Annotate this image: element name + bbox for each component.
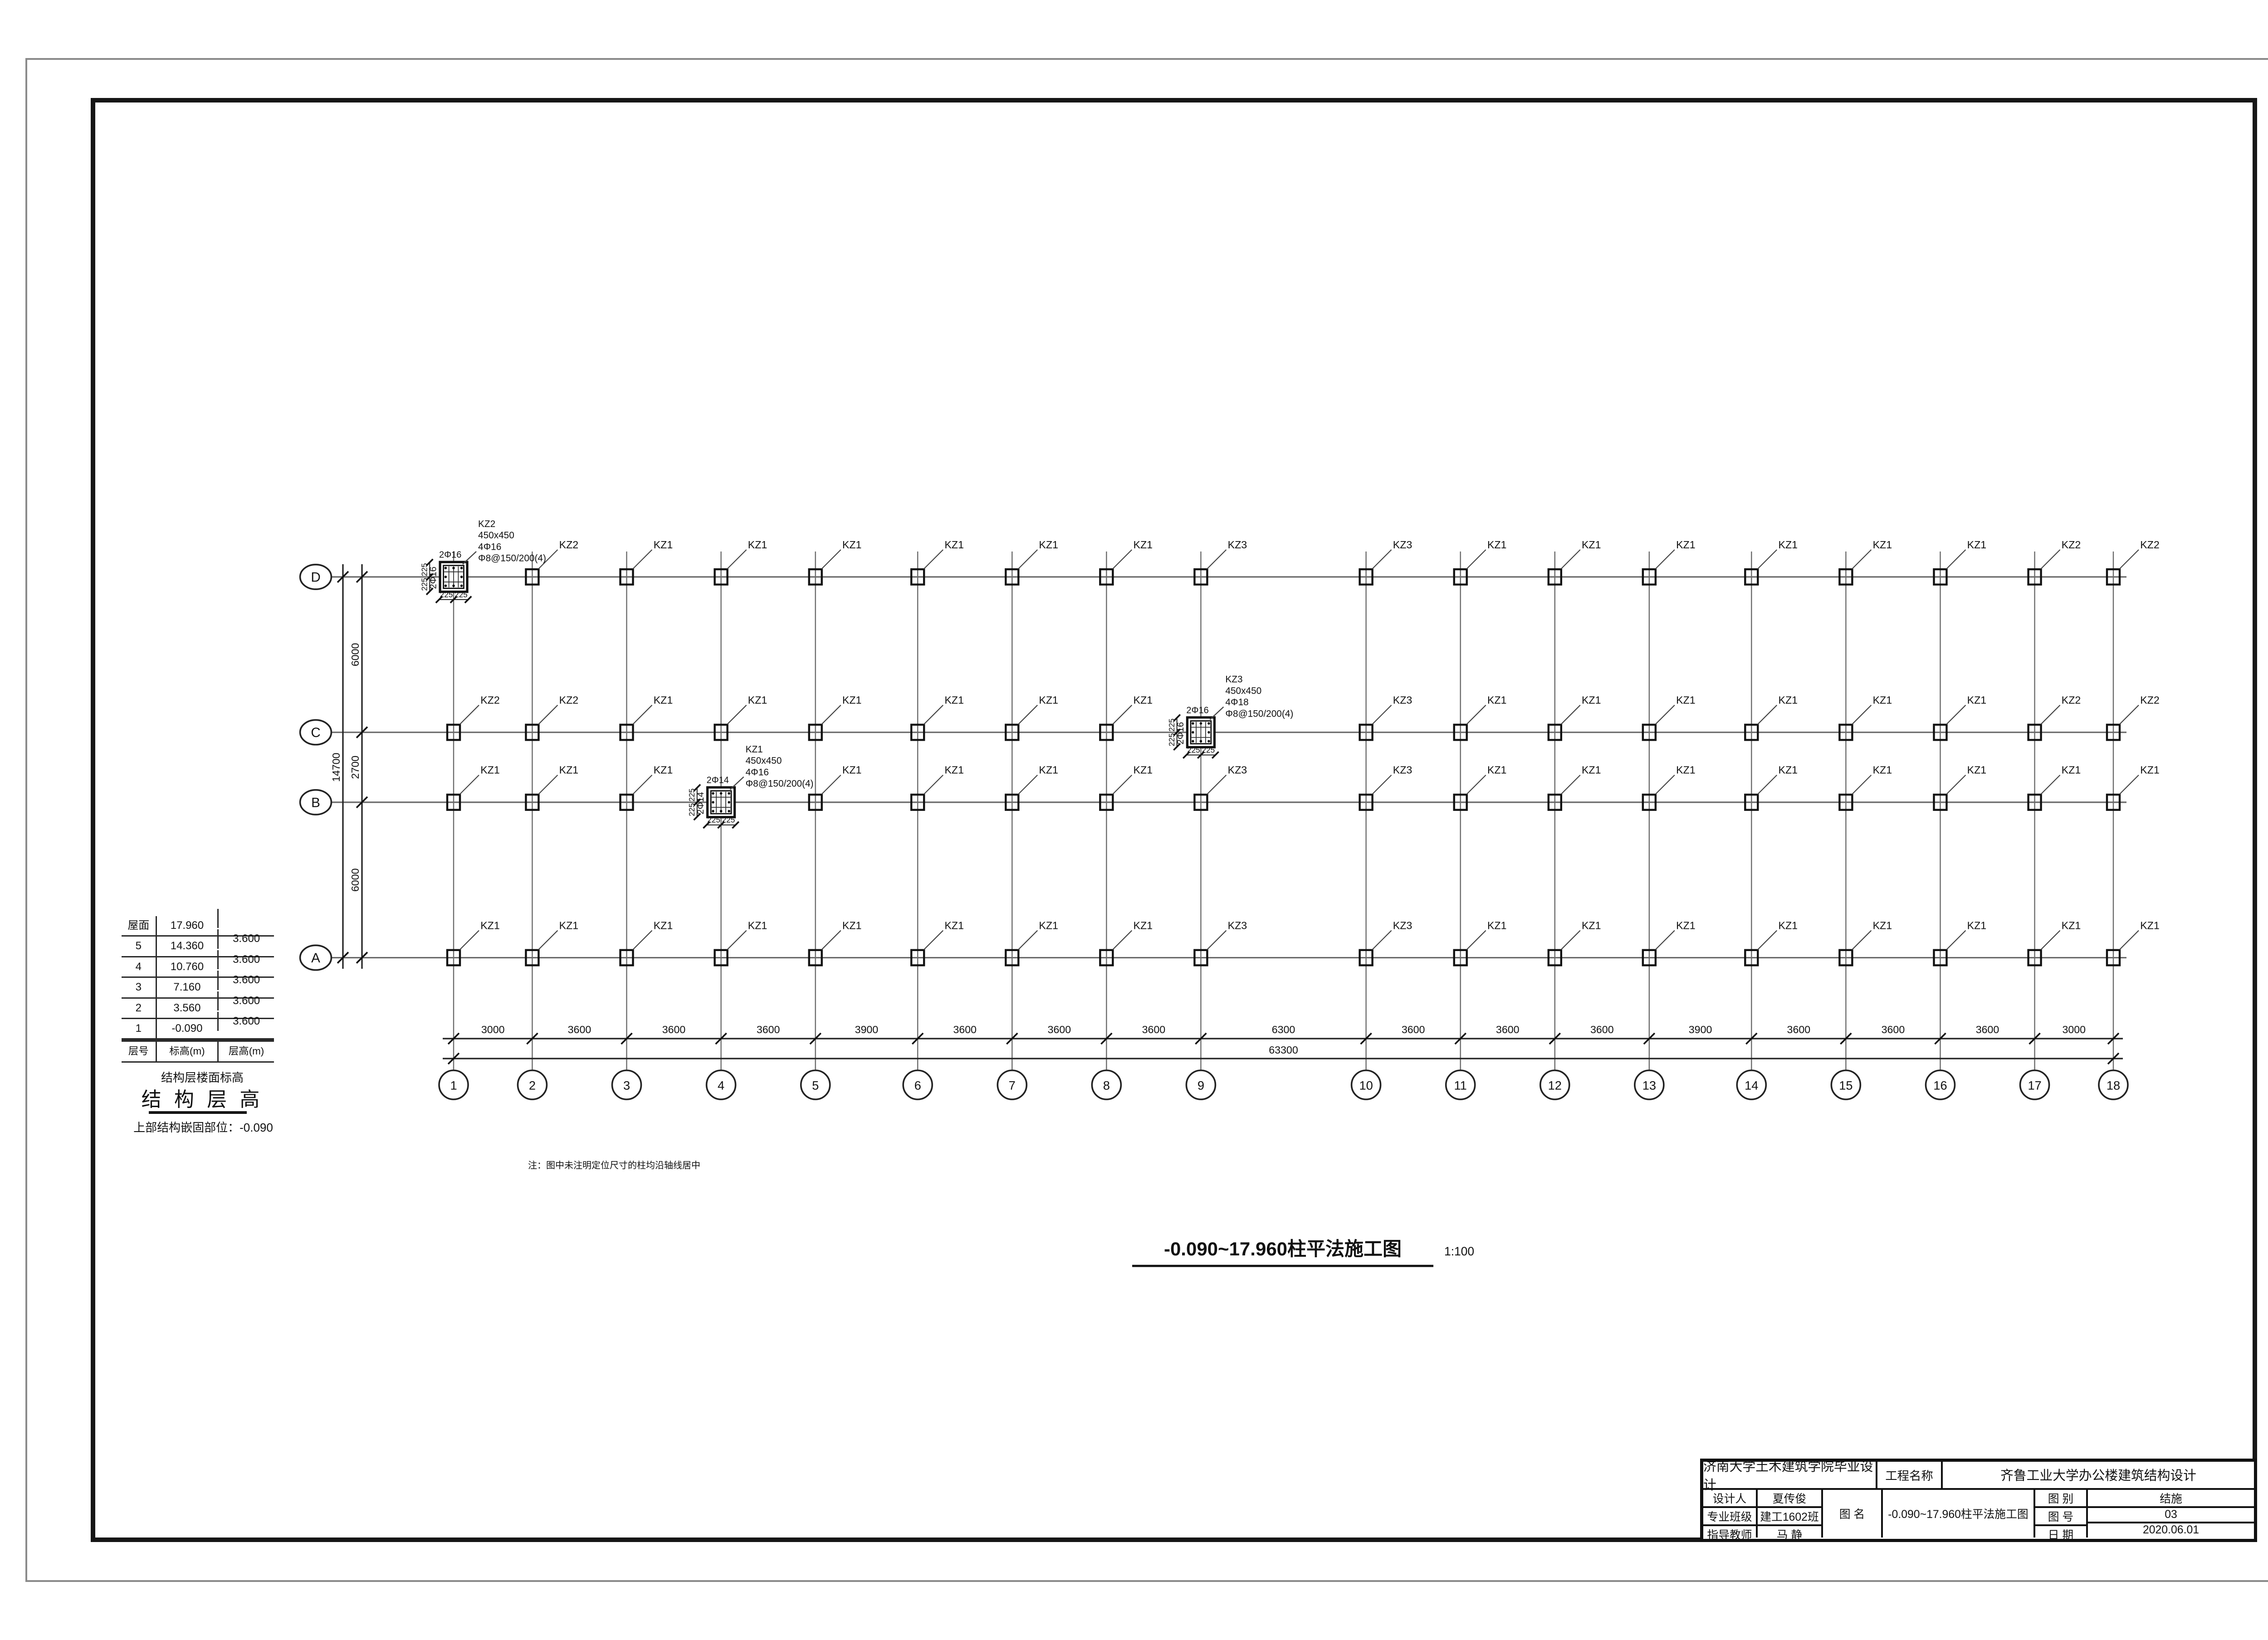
column-label: KZ1 [1039,694,1058,706]
column-label: KZ1 [1487,539,1507,551]
column-label: KZ1 [944,694,964,706]
svg-text:3600: 3600 [1496,1024,1520,1035]
column-label: KZ2 [2140,539,2160,551]
svg-text:3600: 3600 [757,1024,780,1035]
column-detail-callout-line: 4Φ16 [478,542,501,552]
column-label: KZ3 [1228,539,1247,551]
level-elevation: 10.760 [156,957,218,976]
designer-label: 设计人 [1703,1490,1756,1508]
column-label: KZ1 [559,764,579,776]
svg-text:3600: 3600 [1047,1024,1071,1035]
column-label: KZ1 [1778,764,1798,776]
column-label: KZ1 [480,919,500,931]
column-label: KZ1 [748,919,767,931]
svg-text:6300: 6300 [1272,1024,1295,1035]
level-height: 3.600 [217,1012,274,1031]
column-label: KZ2 [559,694,579,706]
column-detail-callout-line: 450x450 [746,756,782,766]
column-label: KZ1 [1582,764,1601,776]
svg-text:3600: 3600 [1882,1024,1905,1035]
meta-value-col: 结施 03 2020.06.01 [2088,1490,2254,1537]
column-label: KZ1 [944,919,964,931]
svg-text:63300: 63300 [1269,1044,1298,1056]
advisor-name: 马 静 [1758,1526,1821,1542]
column-label: KZ1 [748,539,767,551]
column-label: KZ1 [1487,919,1507,931]
svg-text:3600: 3600 [953,1024,977,1035]
column-label: KZ1 [842,694,862,706]
column-detail-callout-line: Φ8@150/200(4) [746,778,814,789]
svg-text:14700: 14700 [330,753,342,782]
svg-text:15: 15 [1839,1078,1853,1092]
column-label: KZ1 [1873,764,1892,776]
column-detail-callout-line: Φ8@150/200(4) [1225,708,1293,719]
drawing-sheet: 3000360036003600390036003600360063003600… [0,0,2268,1640]
column-label: KZ1 [1487,764,1507,776]
svg-text:225: 225 [420,563,429,576]
column-detail-callout-line: 450x450 [1225,686,1261,696]
svg-text:3600: 3600 [662,1024,686,1035]
floor-level-table: 屋面 17.960 5 14.360 3.600 4 10.760 3.600 … [122,916,274,1063]
structural-plan-svg: 3000360036003600390036003600360063003600… [0,0,2268,1640]
svg-text:13: 13 [1642,1078,1656,1092]
date-label: 日 期 [2035,1526,2086,1542]
svg-text:12: 12 [1548,1078,1562,1092]
table-header-row: 层号 标高(m) 层高(m) [122,1040,274,1062]
column-label: KZ1 [1582,919,1601,931]
column-label: KZ3 [1393,764,1413,776]
svg-text:5: 5 [812,1078,819,1092]
column-label: KZ1 [1676,539,1696,551]
level-elevation: 17.960 [156,916,218,935]
column-label: KZ1 [654,919,673,931]
column-label: KZ1 [2140,764,2160,776]
column-label: KZ1 [1967,694,1987,706]
column-detail-callout-line: 450x450 [478,530,514,541]
svg-text:-0.090~17.960柱平法施工图: -0.090~17.960柱平法施工图 [1164,1238,1402,1259]
column-label: KZ1 [944,539,964,551]
left-dimensions: 60002700600014700 [330,564,367,969]
svg-text:10: 10 [1359,1078,1373,1092]
class-value: 建工1602班 [1758,1508,1821,1526]
svg-text:注：图中未注明定位尺寸的柱均沿轴线居中: 注：图中未注明定位尺寸的柱均沿轴线居中 [528,1160,700,1171]
school-name: 济南大学土木建筑学院毕业设计 [1703,1462,1877,1488]
svg-text:225: 225 [707,815,720,825]
plan-note: 注：图中未注明定位尺寸的柱均沿轴线居中 [528,1160,700,1171]
column-label: KZ1 [1778,694,1798,706]
svg-text:2Φ16: 2Φ16 [1186,705,1208,715]
level-height: 3.600 [217,991,274,1010]
column-header: 层高(m) [217,1042,274,1061]
column-label: KZ1 [842,539,862,551]
svg-text:1:100: 1:100 [1444,1245,1474,1258]
bottom-dimensions: 3000360036003600390036003600360063003600… [443,1024,2123,1064]
column-label: KZ2 [2062,539,2081,551]
column-label: KZ1 [1039,539,1058,551]
column-label: KZ1 [1134,694,1153,706]
svg-text:225: 225 [1167,733,1176,747]
column-label: KZ1 [1582,539,1601,551]
column-label: KZ1 [654,694,673,706]
svg-text:3900: 3900 [1689,1024,1712,1035]
svg-text:6: 6 [914,1078,921,1092]
column-label: KZ3 [1393,919,1413,931]
column-label: KZ1 [1873,694,1892,706]
svg-text:8: 8 [1103,1078,1110,1092]
column-label: KZ1 [748,694,767,706]
class-label: 专业班级 [1703,1508,1756,1526]
table-row: 1 -0.090 3.600 [122,1019,274,1040]
column-label: KZ1 [1967,764,1987,776]
column-label: KZ1 [1967,539,1987,551]
drawing-name-label: 图 名 [1823,1490,1881,1537]
svg-text:D: D [311,570,320,585]
svg-text:3600: 3600 [1402,1024,1425,1035]
svg-text:3900: 3900 [855,1024,879,1035]
column-label: KZ3 [1393,694,1413,706]
svg-text:225: 225 [440,590,453,599]
svg-text:225: 225 [722,815,735,825]
level-name: 屋面 [122,916,156,935]
column-label: KZ1 [480,764,500,776]
column-label: KZ1 [1778,919,1798,931]
axis-grid [332,552,2126,1070]
column-detail: 2Φ162Φ16225225225225KZ3450x4504Φ18Φ8@150… [1167,674,1293,758]
column-label: KZ1 [1873,919,1892,931]
column-detail-callout-line: 4Φ16 [746,767,769,777]
column-label: KZ1 [842,764,862,776]
drawing-name: -0.090~17.960柱平法施工图 [1883,1490,2033,1537]
level-elevation: 3.560 [156,999,218,1018]
axis-bubbles: 123456789101112131415161718DCBA [300,565,2128,1099]
svg-text:225: 225 [1202,745,1215,754]
level-name: 1 [122,1019,156,1038]
project-label: 工程名称 [1877,1462,1943,1488]
column-header: 层号 [122,1042,156,1061]
svg-text:6000: 6000 [349,643,361,667]
svg-text:3600: 3600 [1590,1024,1614,1035]
column-detail-callout-line: KZ3 [1225,674,1242,685]
svg-text:6000: 6000 [349,868,361,892]
column-detail: 2Φ162Φ16225225225225KZ2450x4504Φ16Φ8@150… [420,519,546,603]
column-label: KZ1 [1039,764,1058,776]
svg-text:3: 3 [623,1078,630,1092]
column-label: KZ2 [2140,694,2160,706]
svg-text:225: 225 [455,590,468,599]
svg-text:14: 14 [1745,1078,1758,1092]
column-label: KZ2 [480,694,500,706]
level-elevation: 14.360 [156,937,218,956]
column-label: KZ1 [1487,694,1507,706]
level-name: 3 [122,978,156,997]
level-name: 4 [122,957,156,976]
level-height: 3.600 [217,971,274,990]
project-name: 齐鲁工业大学办公楼建筑结构设计 [1943,1462,2254,1488]
svg-text:3600: 3600 [568,1024,591,1035]
column-label: KZ1 [2140,919,2160,931]
svg-text:225: 225 [687,789,696,802]
column-label: KZ3 [1228,764,1247,776]
number-value: 03 [2088,1508,2254,1524]
svg-text:225: 225 [420,578,429,591]
column-label: KZ1 [1134,919,1153,931]
meta-label-col: 图 别 图 号 日 期 [2035,1490,2088,1537]
caption-underline [149,1111,247,1114]
level-height [217,909,274,928]
level-name: 5 [122,937,156,956]
level-height: 3.600 [217,929,274,948]
column-label: KZ1 [1676,764,1696,776]
column-header: 标高(m) [156,1042,218,1061]
level-elevation: -0.090 [156,1019,218,1038]
level-elevation: 7.160 [156,978,218,997]
embedment-note: 上部结构嵌固部位：-0.090 [83,1118,323,1135]
column-label: KZ1 [2062,764,2081,776]
advisor-label: 指导教师 [1703,1526,1756,1542]
level-name: 2 [122,999,156,1018]
svg-text:17: 17 [2028,1078,2041,1092]
column-label: KZ3 [1228,919,1247,931]
number-label: 图 号 [2035,1508,2086,1526]
column-label: KZ1 [1134,764,1153,776]
svg-text:9: 9 [1198,1078,1204,1092]
column-label: KZ1 [1873,539,1892,551]
column-markers: KZ2KZ1KZ1KZ1KZ1KZ1KZ1KZ3KZ3KZ1KZ1KZ1KZ1K… [447,539,2160,966]
table-caption-large: 结 构 层 高 [105,1083,299,1112]
column-detail: 2Φ142Φ14225225225225KZ1450x4504Φ16Φ8@150… [687,744,813,828]
level-height: 3.600 [217,950,274,969]
svg-text:3600: 3600 [1787,1024,1811,1035]
drawing-name-col: -0.090~17.960柱平法施工图 [1883,1490,2035,1537]
svg-text:7: 7 [1009,1078,1016,1092]
column-label: KZ2 [2062,694,2081,706]
drawing-name-label-col: 图 名 [1823,1490,1883,1537]
value-column: 夏传俊 建工1602班 马 静 [1758,1490,1823,1537]
column-detail-callout-line: Φ8@150/200(4) [478,553,546,564]
column-label: KZ1 [654,764,673,776]
column-detail-callout-line: KZ2 [478,519,495,529]
svg-text:225: 225 [687,803,696,816]
date-value: 2020.06.01 [2088,1523,2254,1537]
svg-text:A: A [311,951,320,966]
column-label: KZ1 [1134,539,1153,551]
column-label: KZ1 [944,764,964,776]
column-label: KZ2 [559,539,579,551]
column-label: KZ3 [1393,539,1413,551]
svg-text:1: 1 [450,1078,457,1092]
svg-text:3000: 3000 [481,1024,505,1035]
svg-text:2: 2 [529,1078,536,1092]
designer-name: 夏传俊 [1758,1490,1821,1508]
svg-text:3600: 3600 [1976,1024,1999,1035]
svg-text:3600: 3600 [1142,1024,1166,1035]
column-label: KZ1 [1967,919,1987,931]
title-block-header-row: 济南大学土木建筑学院毕业设计 工程名称 齐鲁工业大学办公楼建筑结构设计 [1703,1462,2254,1490]
svg-text:16: 16 [1933,1078,1947,1092]
svg-text:225: 225 [1187,745,1200,754]
svg-text:2Φ16: 2Φ16 [439,550,461,560]
column-detail-callout-line: 4Φ18 [1225,697,1248,708]
label-column: 设计人 专业班级 指导教师 [1703,1490,1758,1537]
category-value: 结施 [2088,1490,2254,1508]
column-label: KZ1 [559,919,579,931]
column-label: KZ1 [1676,694,1696,706]
category-label: 图 别 [2035,1490,2086,1508]
svg-text:B: B [311,795,320,810]
column-detail-callout-line: KZ1 [746,744,763,755]
column-label: KZ1 [842,919,862,931]
svg-text:2700: 2700 [349,756,361,779]
title-block: 济南大学土木建筑学院毕业设计 工程名称 齐鲁工业大学办公楼建筑结构设计 设计人 … [1700,1459,2257,1542]
svg-text:2Φ14: 2Φ14 [707,775,729,785]
svg-text:225: 225 [1167,718,1176,732]
plan-title: -0.090~17.960柱平法施工图1:100 [1132,1238,1474,1266]
column-label: KZ1 [1676,919,1696,931]
column-label: KZ1 [1039,919,1058,931]
column-label: KZ1 [2062,919,2081,931]
column-label: KZ1 [1778,539,1798,551]
column-label: KZ1 [1582,694,1601,706]
svg-text:C: C [311,725,320,740]
svg-text:4: 4 [718,1078,724,1092]
svg-text:3000: 3000 [2062,1024,2086,1035]
column-label: KZ1 [654,539,673,551]
svg-text:11: 11 [1454,1078,1467,1092]
svg-text:18: 18 [2107,1078,2120,1092]
